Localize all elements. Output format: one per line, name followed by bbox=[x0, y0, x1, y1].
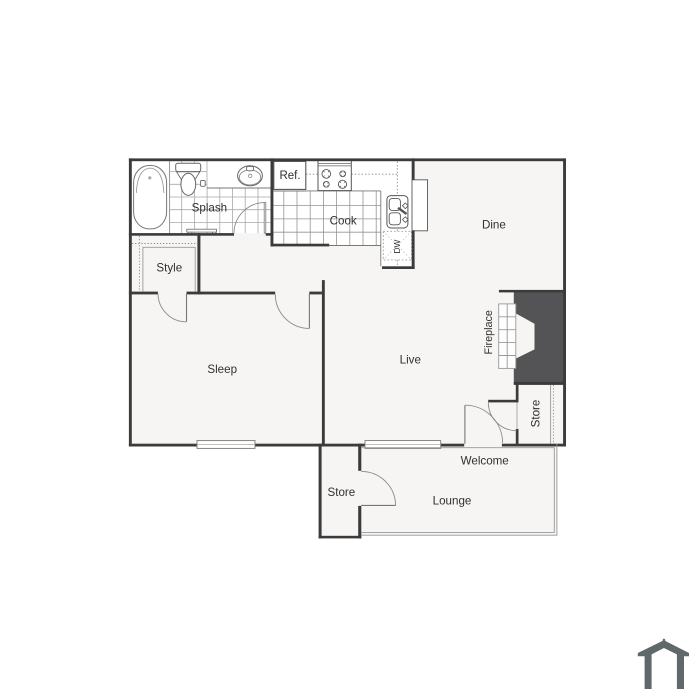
svg-text:Splash: Splash bbox=[192, 201, 227, 214]
svg-text:Live: Live bbox=[400, 353, 421, 366]
svg-text:Ref.: Ref. bbox=[279, 170, 300, 182]
svg-text:Sleep: Sleep bbox=[207, 363, 237, 376]
svg-text:Style: Style bbox=[156, 261, 182, 274]
svg-text:Store: Store bbox=[530, 400, 543, 428]
svg-text:Lounge: Lounge bbox=[433, 495, 472, 508]
svg-text:Store: Store bbox=[328, 486, 356, 499]
svg-text:Welcome: Welcome bbox=[461, 454, 509, 467]
svg-text:Dine: Dine bbox=[482, 219, 506, 232]
svg-text:DW: DW bbox=[392, 239, 402, 253]
svg-text:Cook: Cook bbox=[330, 215, 357, 228]
svg-text:Fireplace: Fireplace bbox=[483, 310, 495, 354]
